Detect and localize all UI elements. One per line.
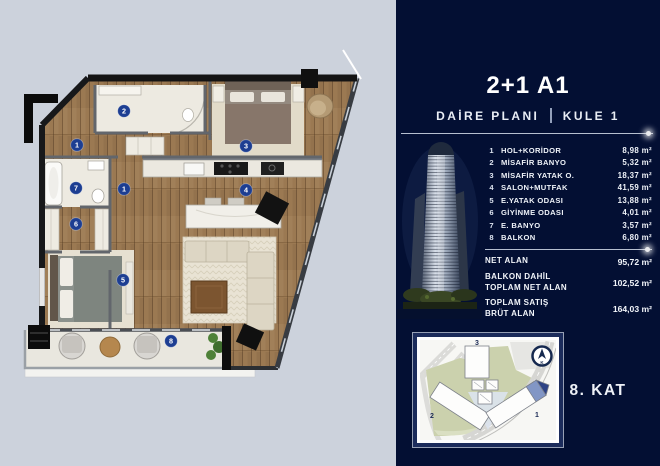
info-panel: 2+1 A1 DAİRE PLANI KULE 1 — [396, 0, 660, 466]
room-list: 1HOL+KORİDOR8,98 m² 2MİSAFİR BANYO5,32 m… — [485, 146, 652, 246]
marker-master-bath: 7 — [70, 182, 83, 195]
site-label-1: 1 — [535, 412, 539, 419]
tower-render-image — [397, 141, 482, 319]
room-row: 6GİYİNME ODASI4,01 m² — [485, 208, 652, 220]
room-row: 3MİSAFİR YATAK O.18,37 m² — [485, 171, 652, 183]
tower-illustration — [397, 141, 482, 319]
brochure-page: 1 1 2 3 4 5 6 7 8 2+1 A1 DAİRE PLANI KUL… — [0, 0, 660, 466]
marker-dressing: 6 — [70, 218, 83, 231]
totals-divider — [485, 249, 652, 250]
room-row: 2MİSAFİR BANYO5,32 m² — [485, 158, 652, 170]
room-row: 8BALKON6,80 m² — [485, 233, 652, 245]
svg-text:8: 8 — [169, 336, 173, 345]
room-row: 1HOL+KORİDOR8,98 m² — [485, 146, 652, 158]
svg-text:5: 5 — [121, 275, 125, 284]
total-gross: TOPLAM SATIŞBRÜT ALAN 164,03 m² — [485, 298, 652, 319]
site-plan-map: 3 2 1 K — [420, 340, 556, 440]
room-row: 7E. BANYO3,57 m² — [485, 221, 652, 233]
marker-guest-bath: 2 — [118, 105, 131, 118]
svg-text:7: 7 — [74, 183, 78, 192]
total-net: NET ALAN 95,72 m² — [485, 256, 652, 267]
site-label-3: 3 — [475, 340, 479, 347]
marker-master-bedroom: 5 — [117, 274, 130, 287]
divider-glow-dot — [646, 131, 651, 136]
header-divider — [401, 133, 653, 134]
tower-label: KULE 1 — [563, 109, 620, 123]
svg-text:6: 6 — [74, 219, 78, 228]
floor-plan-drawing: 1 1 2 3 4 5 6 7 8 — [0, 0, 396, 466]
balcony-slab — [25, 368, 255, 377]
svg-text:4: 4 — [244, 185, 248, 194]
svg-text:1: 1 — [122, 184, 126, 193]
compass-icon: K — [533, 347, 552, 366]
divider-glow-dot — [645, 247, 650, 252]
marker-hall-2: 1 — [118, 183, 131, 196]
unit-title: 2+1 A1 — [396, 72, 660, 100]
floor-number-label: 8. KAT — [548, 382, 648, 400]
site-label-2: 2 — [430, 413, 434, 420]
marker-guest-bedroom: 3 — [240, 140, 253, 153]
room-row: 5E.YATAK ODASI13,88 m² — [485, 196, 652, 208]
marker-living-kitchen: 4 — [240, 184, 253, 197]
svg-text:1: 1 — [75, 140, 79, 149]
area-totals: NET ALAN 95,72 m² BALKON DAHİLTOPLAM NET… — [485, 256, 652, 324]
svg-text:2: 2 — [122, 106, 126, 115]
site-plan-box: 3 2 1 K — [413, 333, 563, 447]
total-net-with-balcony: BALKON DAHİLTOPLAM NET ALAN 102,52 m² — [485, 272, 652, 293]
svg-text:3: 3 — [244, 141, 248, 150]
room-row: 4SALON+MUTFAK41,59 m² — [485, 183, 652, 195]
plan-subtitle: DAİRE PLANI KULE 1 — [396, 108, 660, 123]
subtitle-separator — [550, 108, 552, 123]
marker-balcony: 8 — [165, 335, 178, 348]
marker-hall: 1 — [71, 139, 84, 152]
plan-type-label: DAİRE PLANI — [436, 109, 539, 123]
site-wing-3 — [465, 346, 489, 378]
floor-plan-area: 1 1 2 3 4 5 6 7 8 — [0, 0, 396, 466]
